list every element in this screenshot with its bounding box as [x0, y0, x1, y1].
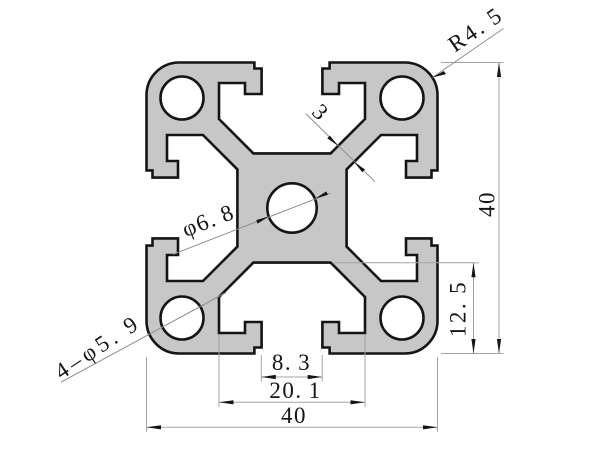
svg-text:4–φ5. 9: 4–φ5. 9	[50, 309, 145, 384]
svg-text:20. 1: 20. 1	[269, 378, 321, 403]
svg-text:3: 3	[307, 99, 334, 126]
svg-text:40: 40	[475, 191, 500, 217]
svg-text:8. 3: 8. 3	[272, 350, 311, 375]
svg-text:40: 40	[281, 403, 307, 428]
svg-text:R4. 5: R4. 5	[443, 2, 508, 57]
svg-text:12. 5: 12. 5	[446, 280, 471, 337]
svg-text:φ6. 8: φ6. 8	[179, 199, 239, 242]
